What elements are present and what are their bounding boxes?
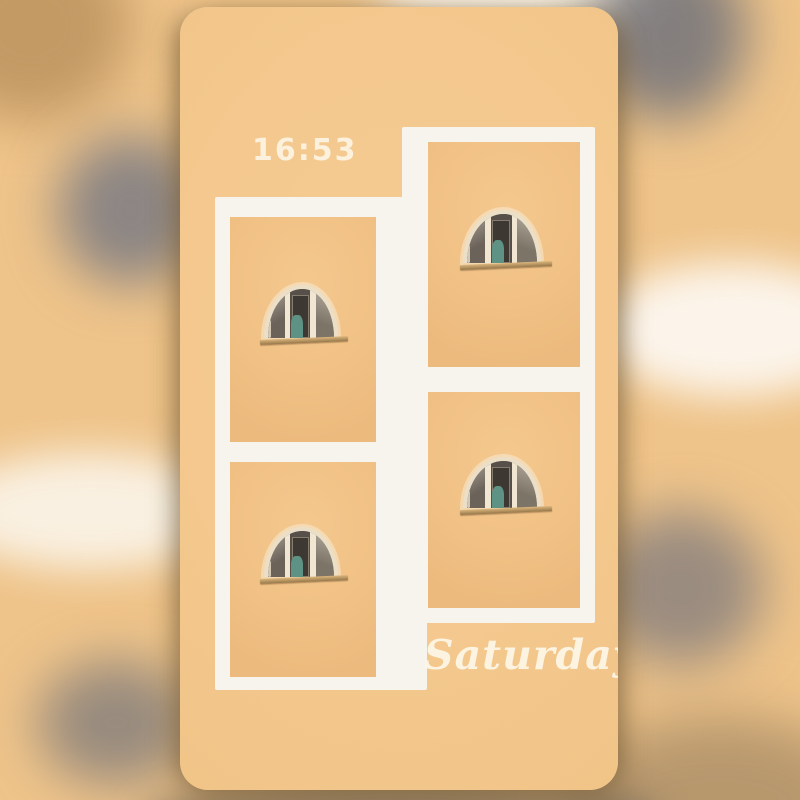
day-overlay: Saturday [424,631,594,679]
backdrop-blob-white-right [598,262,800,397]
window-pane-right [316,531,335,578]
window-teal-object [291,556,303,578]
window-pane-right [517,461,537,508]
time-overlay: 16:53 [252,133,358,168]
window-pane-middle [290,289,310,338]
arched-window-photo [264,285,344,344]
window-teal-object [291,315,303,338]
window-pane-middle [290,531,310,578]
story-screen: 16:53 Saturday [0,0,800,800]
window-pane-left [467,461,485,508]
window-teal-object [492,240,504,263]
window-glass-glint [467,491,470,508]
arched-window-photo [463,457,547,513]
photo-tile-top-right [428,142,580,367]
window-teal-object [492,486,504,508]
window-pane-right [316,289,335,338]
window-glass-glint [268,320,271,338]
window-pane-left [268,531,285,578]
photo-tile-bottom-right [428,392,580,608]
window-pane-middle [491,461,512,508]
window-pane-left [467,214,485,263]
window-pane-middle [491,214,512,263]
backdrop-blob-dark-topleft [0,0,130,120]
window-arch-frame [463,457,541,508]
photo-card: 16:53 Saturday [180,7,618,790]
window-arch-frame [264,285,339,338]
arched-window-photo [264,527,344,583]
backdrop-blob-gray-right [598,510,763,665]
window-arch-frame [463,210,541,263]
window-pane-right [517,214,537,263]
arched-window-photo [463,210,547,269]
window-pane-left [268,289,285,338]
window-glass-glint [268,561,271,578]
photo-tile-bottom-left [230,462,376,677]
window-glass-glint [467,245,470,263]
window-arch-frame [264,527,339,578]
backdrop-blob-gray-bottomleft [38,660,193,785]
photo-tile-top-left [230,217,376,442]
